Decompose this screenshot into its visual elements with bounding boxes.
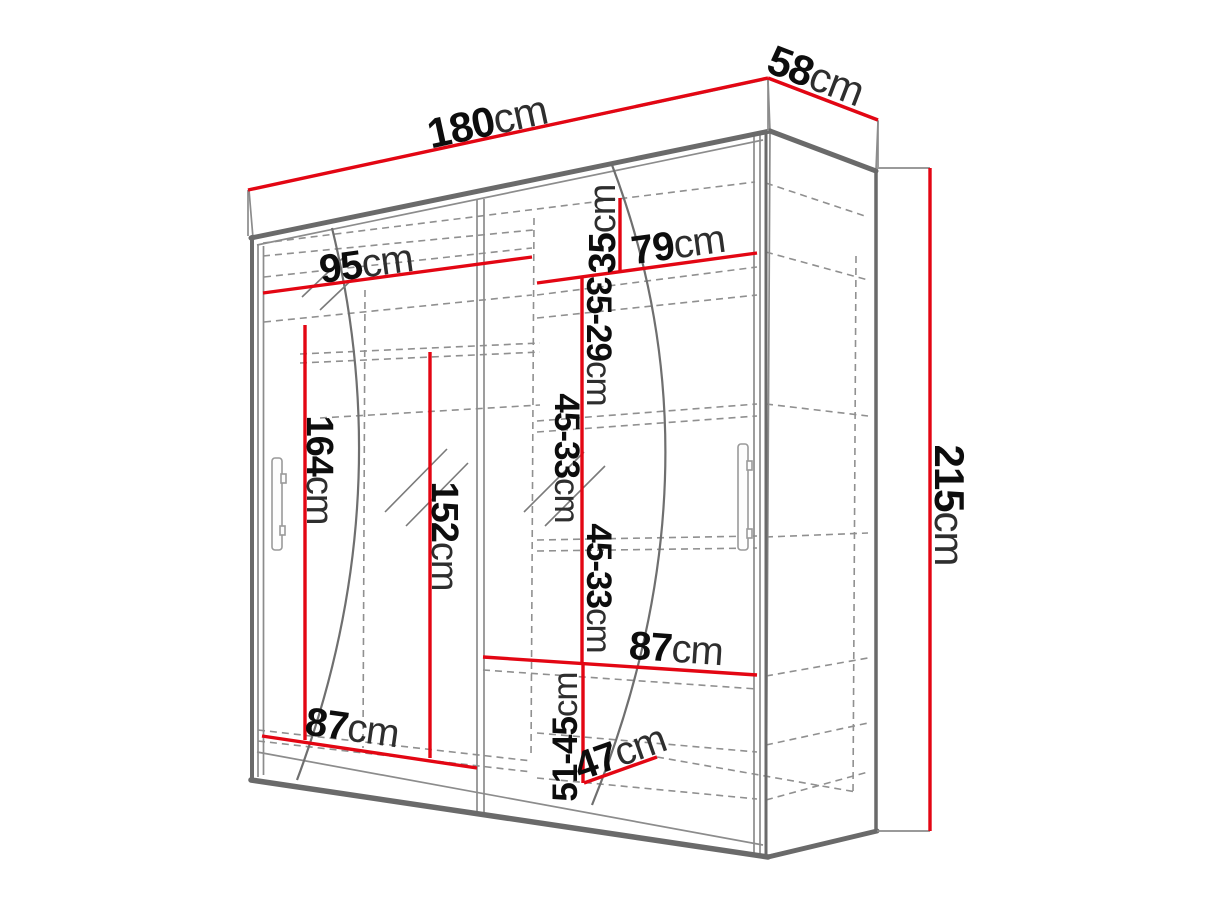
dim-label-mid-152: 152cm (423, 481, 465, 590)
dim-label-gap-45-33-upper: 45-33cm (548, 393, 587, 522)
left-door-handle (272, 458, 282, 550)
right-side-face (766, 131, 876, 856)
dim-label-gap-51-45: 51-45cm (546, 672, 585, 801)
dim-label-height-215: 215cm (927, 444, 974, 565)
dim-label-top-gap-35: 35cm (582, 185, 624, 274)
right-handle-mount-bottom (747, 529, 752, 538)
right-handle-mount-top (747, 461, 752, 470)
wardrobe-dimension-diagram: 180cm 58cm 215cm 95cm 79cm 35cm 35-29cm … (0, 0, 1219, 914)
dim-label-shelf-87-mid: 87cm (628, 624, 725, 674)
dim-label-gap-35-29: 35-29cm (580, 276, 619, 405)
left-handle-mount-bottom (280, 526, 285, 535)
diagram-canvas: 180cm 58cm 215cm 95cm 79cm 35cm 35-29cm … (0, 0, 1219, 914)
left-handle-mount-top (281, 474, 286, 483)
dim-label-gap-45-33-lower: 45-33cm (580, 523, 619, 652)
dim-label-hanging-164: 164cm (298, 415, 340, 524)
